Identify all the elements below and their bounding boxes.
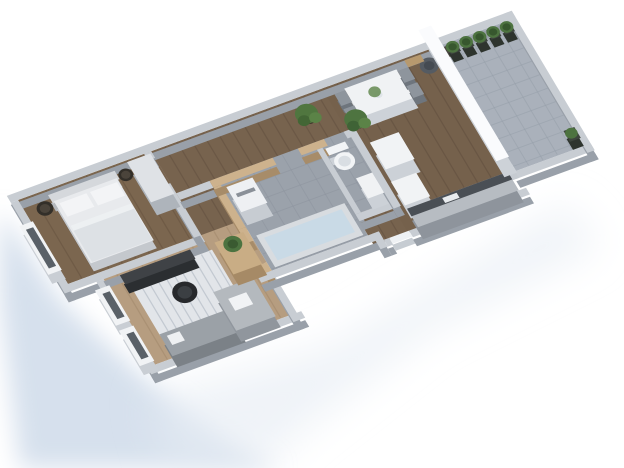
sideboard-plant-core — [228, 240, 239, 249]
planter-5-plant-core — [502, 23, 510, 30]
floor-plan-canvas — [0, 0, 624, 468]
nightstand-east-top — [121, 171, 130, 179]
kitchen-plant-foliage-2 — [347, 121, 360, 132]
planter-corner-plant — [565, 128, 578, 139]
nightstand-west-top — [40, 204, 51, 213]
corner-armchair-seat — [424, 61, 435, 70]
hallway-plant-foliage-2 — [298, 115, 311, 126]
planter-1-plant-core — [448, 43, 456, 50]
planter-3-plant-core — [475, 33, 483, 40]
toilet-seat — [338, 156, 351, 167]
planter-2-plant-core — [462, 38, 470, 45]
desk-chair-seat — [177, 286, 192, 299]
planter-4-plant-core — [489, 28, 497, 35]
table-flowers — [368, 86, 381, 97]
kitchen-plant-foliage-3 — [358, 118, 371, 129]
hallway-plant-foliage-3 — [309, 112, 322, 123]
render-viewport — [0, 0, 624, 468]
